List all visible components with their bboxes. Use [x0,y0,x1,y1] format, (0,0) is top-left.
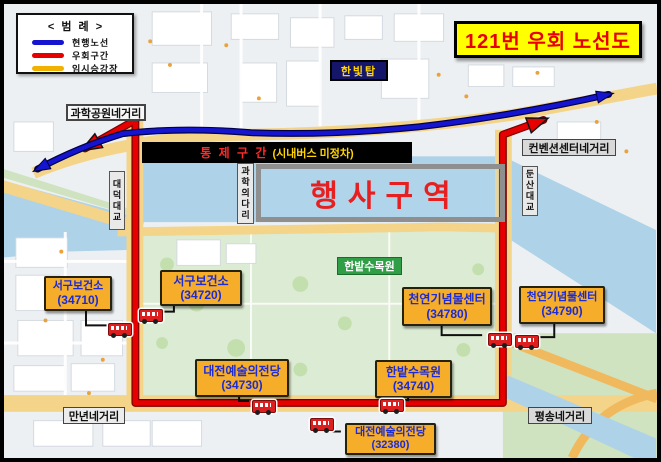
legend-title: < 범 례 > [24,18,128,34]
stop-code: (34720) [180,288,221,302]
dunsan-bridge-label: 둔산대교 [522,166,538,216]
stop-name: 대전예술의전당 [355,426,426,439]
stop-name: 천연기념물센터 [527,291,598,304]
daedeok-bridge-label: 대덕대교 [109,171,125,230]
bus-icon [310,418,332,433]
current-route-swatch [32,40,64,45]
stop-code: (34740) [393,379,434,393]
bus-icon [380,399,402,414]
bus-stop-34710: 서구보건소 (34710) [44,276,112,311]
arboretum-label: 한밭수목원 [337,257,402,275]
map-title-box: 121번 우회 노선도 [454,21,642,58]
map-title: 121번 우회 노선도 [465,25,631,54]
intersection-label-convention-center: 컨벤션센터네거리 [522,139,616,156]
stop-name: 한밭수목원 [386,365,441,379]
control-note-text: (시내버스 미정차) [272,145,353,161]
bus-icon [488,333,510,348]
detour-route-swatch [32,53,64,58]
bus-stop-34780: 천연기념물센터 (34780) [402,287,492,326]
bus-stop-34790: 천연기념물센터 (34790) [519,286,605,324]
legend-item-temp-stop: 임시승강장 [24,62,128,75]
stop-code: (34710) [57,293,98,307]
science-bridge-label: 과학의다리 [237,163,254,224]
intersection-label-mannyeon: 만년네거리 [63,407,125,424]
control-zone-text: 통 제 구 간 [200,144,268,161]
bus-stop-34730: 대전예술의전당 (34730) [195,359,289,397]
stop-code: (34730) [221,378,262,392]
stop-code: (32380) [372,439,410,452]
bus-stop-34720: 서구보건소 (34720) [160,270,242,306]
stop-name: 천연기념물센터 [408,292,485,306]
stop-name: 대전예술의전당 [203,364,280,378]
event-zone-label: 행사구역 [300,171,460,215]
intersection-label-pyeongsong: 평송네거리 [528,407,592,424]
temp-stop-swatch [32,66,64,71]
legend-box: < 범 례 > 현행노선 우회구간 임시승강장 [16,13,134,74]
hanbit-tower-label: 한빛탑 [330,60,388,81]
bus-icon [108,323,130,338]
bus-stop-34740: 한밭수목원 (34740) [375,360,452,398]
stop-name: 서구보건소 [53,280,104,293]
control-banner: 통 제 구 간 (시내버스 미정차) [142,142,412,163]
bus-icon [139,309,161,324]
stop-code: (34790) [541,304,582,318]
legend-item-detour: 우회구간 [24,49,128,62]
bus-stop-32380: 대전예술의전당 (32380) [345,423,436,455]
bus-icon [252,400,274,415]
stop-name: 서구보건소 [173,274,228,288]
bus-icon [515,335,537,350]
event-zone-box: 행사구역 [256,164,505,222]
route-map: < 범 례 > 현행노선 우회구간 임시승강장 121번 우회 노선도 통 제 … [0,0,661,462]
intersection-label-science-park: 과학공원네거리 [66,104,146,121]
stop-code: (34780) [426,307,467,321]
legend-item-current: 현행노선 [24,36,128,49]
